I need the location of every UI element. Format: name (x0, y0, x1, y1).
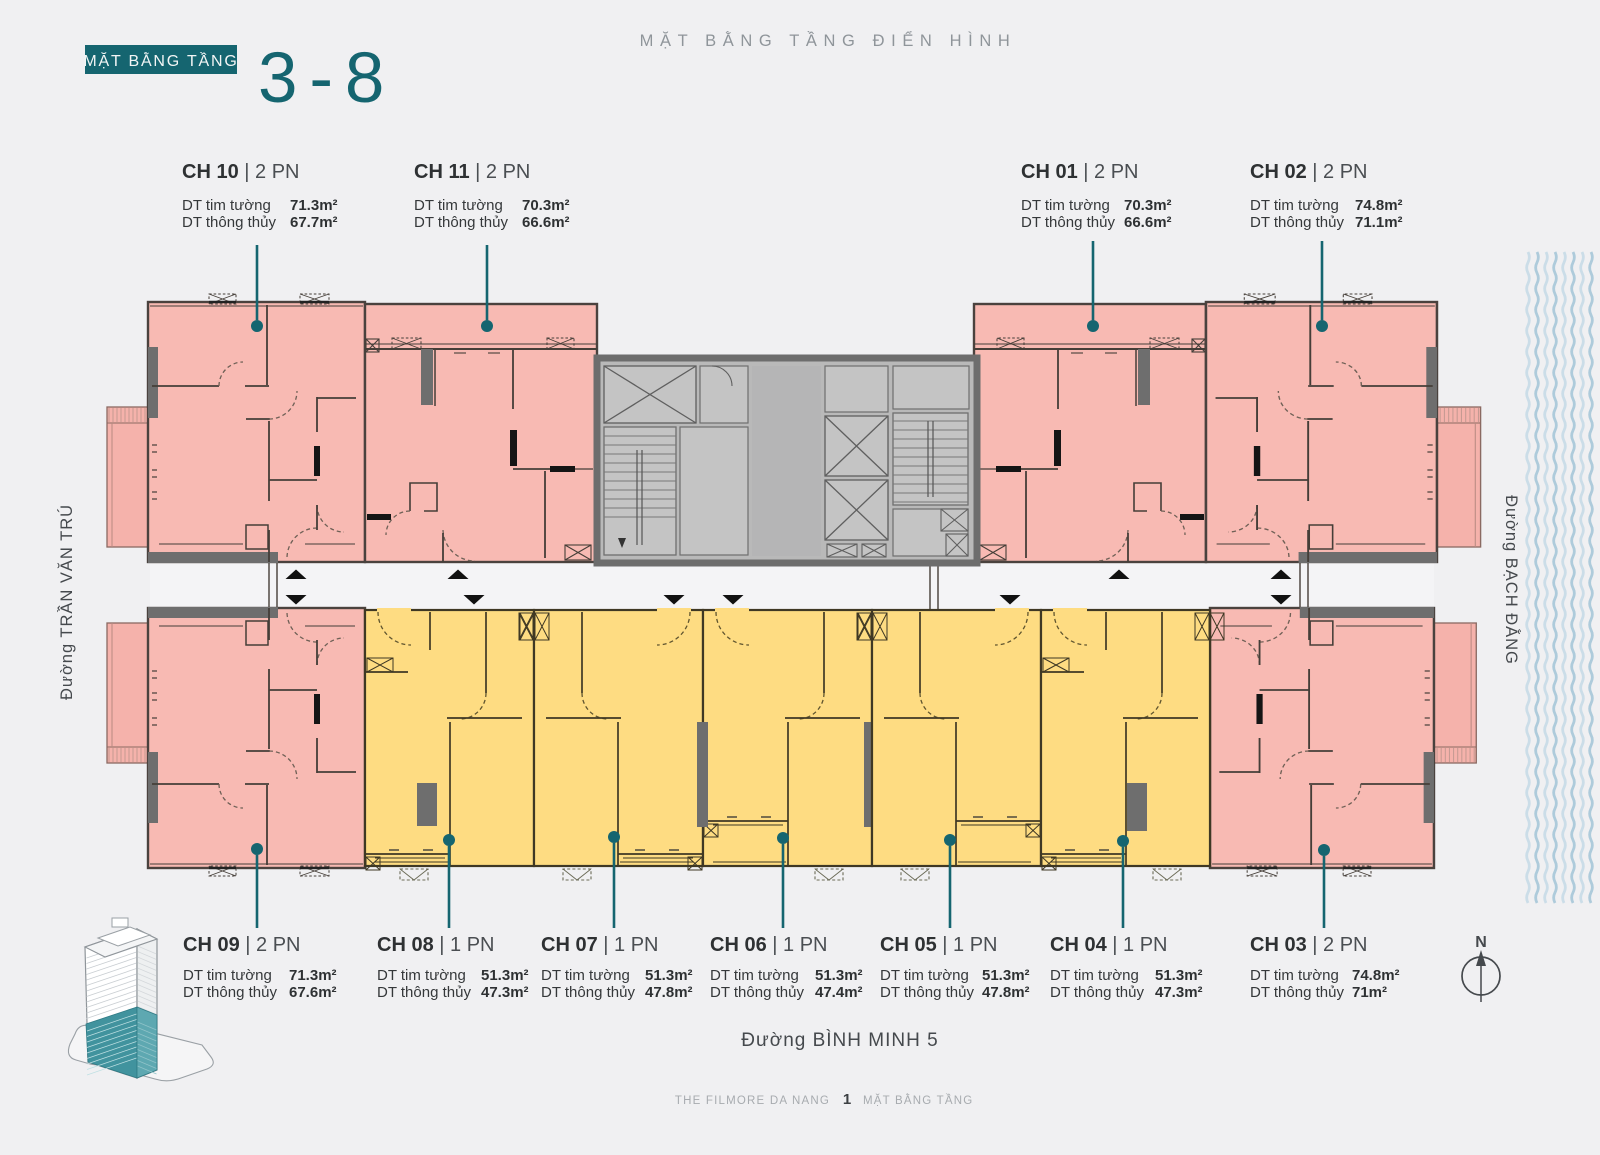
svg-text:CH 02 | 2 PN: CH 02 | 2 PN (1250, 161, 1367, 183)
svg-text:67.6m²: 67.6m² (289, 984, 337, 1001)
svg-text:71.3m²: 71.3m² (290, 197, 338, 214)
svg-text:CH 08 | 1 PN: CH 08 | 1 PN (377, 934, 494, 956)
svg-text:DT thông thủy: DT thông thủy (541, 984, 635, 1001)
svg-text:47.8m²: 47.8m² (982, 984, 1030, 1001)
svg-text:DT tim tường: DT tim tường (1050, 967, 1139, 984)
svg-text:47.8m²: 47.8m² (645, 984, 693, 1001)
svg-text:DT tim tường: DT tim tường (710, 967, 799, 984)
svg-text:1: 1 (843, 1091, 851, 1108)
svg-text:71.3m²: 71.3m² (289, 967, 337, 984)
svg-text:51.3m²: 51.3m² (645, 967, 693, 984)
svg-text:MẶT BẰNG TẦNG: MẶT BẰNG TẦNG (863, 1094, 973, 1107)
svg-text:66.6m²: 66.6m² (1124, 214, 1172, 231)
svg-text:66.6m²: 66.6m² (522, 214, 570, 231)
svg-text:DT thông thủy: DT thông thủy (183, 984, 277, 1001)
svg-text:DT thông thủy: DT thông thủy (1250, 214, 1344, 231)
svg-text:N: N (1475, 934, 1487, 951)
svg-text:CH 01 | 2 PN: CH 01 | 2 PN (1021, 161, 1138, 183)
svg-text:MẶT BẰNG TẦNG ĐIỂN HÌNH: MẶT BẰNG TẦNG ĐIỂN HÌNH (640, 31, 1017, 50)
svg-text:71m²: 71m² (1352, 984, 1387, 1001)
svg-text:70.3m²: 70.3m² (522, 197, 570, 214)
svg-text:DT thông thủy: DT thông thủy (377, 984, 471, 1001)
svg-text:CH 06 | 1 PN: CH 06 | 1 PN (710, 934, 827, 956)
svg-text:74.8m²: 74.8m² (1352, 967, 1400, 984)
svg-text:70.3m²: 70.3m² (1124, 197, 1172, 214)
svg-text:CH 05 | 1 PN: CH 05 | 1 PN (880, 934, 997, 956)
svg-text:74.8m²: 74.8m² (1355, 197, 1403, 214)
svg-text:DT tim tường: DT tim tường (1250, 967, 1339, 984)
svg-text:DT tim tường: DT tim tường (1250, 197, 1339, 214)
svg-text:51.3m²: 51.3m² (815, 967, 863, 984)
svg-text:DT thông thủy: DT thông thủy (880, 984, 974, 1001)
svg-text:CH 10 | 2 PN: CH 10 | 2 PN (182, 161, 299, 183)
svg-text:DT tim tường: DT tim tường (414, 197, 503, 214)
svg-text:71.1m²: 71.1m² (1355, 214, 1403, 231)
svg-text:MẶT BẰNG TẦNG: MẶT BẰNG TẦNG (83, 51, 238, 70)
svg-text:DT thông thủy: DT thông thủy (182, 214, 276, 231)
svg-text:67.7m²: 67.7m² (290, 214, 338, 231)
svg-text:DT thông thủy: DT thông thủy (1250, 984, 1344, 1001)
svg-text:3 - 8: 3 - 8 (258, 39, 384, 118)
svg-text:THE FILMORE DA NANG: THE FILMORE DA NANG (675, 1095, 830, 1107)
svg-text:DT thông thủy: DT thông thủy (710, 984, 804, 1001)
svg-text:Đường TRẦN VĂN TRÚ: Đường TRẦN VĂN TRÚ (57, 504, 76, 700)
svg-text:DT tim tường: DT tim tường (182, 197, 271, 214)
svg-text:DT thông thủy: DT thông thủy (1050, 984, 1144, 1001)
svg-text:51.3m²: 51.3m² (982, 967, 1030, 984)
svg-text:Đường BÌNH MINH 5: Đường BÌNH MINH 5 (741, 1030, 938, 1051)
svg-text:47.3m²: 47.3m² (481, 984, 529, 1001)
svg-text:47.4m²: 47.4m² (815, 984, 863, 1001)
svg-text:DT tim tường: DT tim tường (1021, 197, 1110, 214)
svg-text:DT tim tường: DT tim tường (541, 967, 630, 984)
svg-text:DT thông thủy: DT thông thủy (1021, 214, 1115, 231)
svg-text:CH 09 | 2 PN: CH 09 | 2 PN (183, 934, 300, 956)
svg-text:CH 07 | 1 PN: CH 07 | 1 PN (541, 934, 658, 956)
svg-text:DT tim tường: DT tim tường (377, 967, 466, 984)
svg-text:CH 03 | 2 PN: CH 03 | 2 PN (1250, 934, 1367, 956)
svg-text:51.3m²: 51.3m² (1155, 967, 1203, 984)
svg-text:CH 11 | 2 PN: CH 11 | 2 PN (414, 161, 530, 183)
svg-text:51.3m²: 51.3m² (481, 967, 529, 984)
svg-text:DT tim tường: DT tim tường (880, 967, 969, 984)
svg-text:Đường BẠCH ĐẰNG: Đường BẠCH ĐẰNG (1502, 495, 1521, 665)
svg-text:DT thông thủy: DT thông thủy (414, 214, 508, 231)
svg-text:47.3m²: 47.3m² (1155, 984, 1203, 1001)
svg-text:CH 04 | 1 PN: CH 04 | 1 PN (1050, 934, 1167, 956)
svg-text:DT tim tường: DT tim tường (183, 967, 272, 984)
